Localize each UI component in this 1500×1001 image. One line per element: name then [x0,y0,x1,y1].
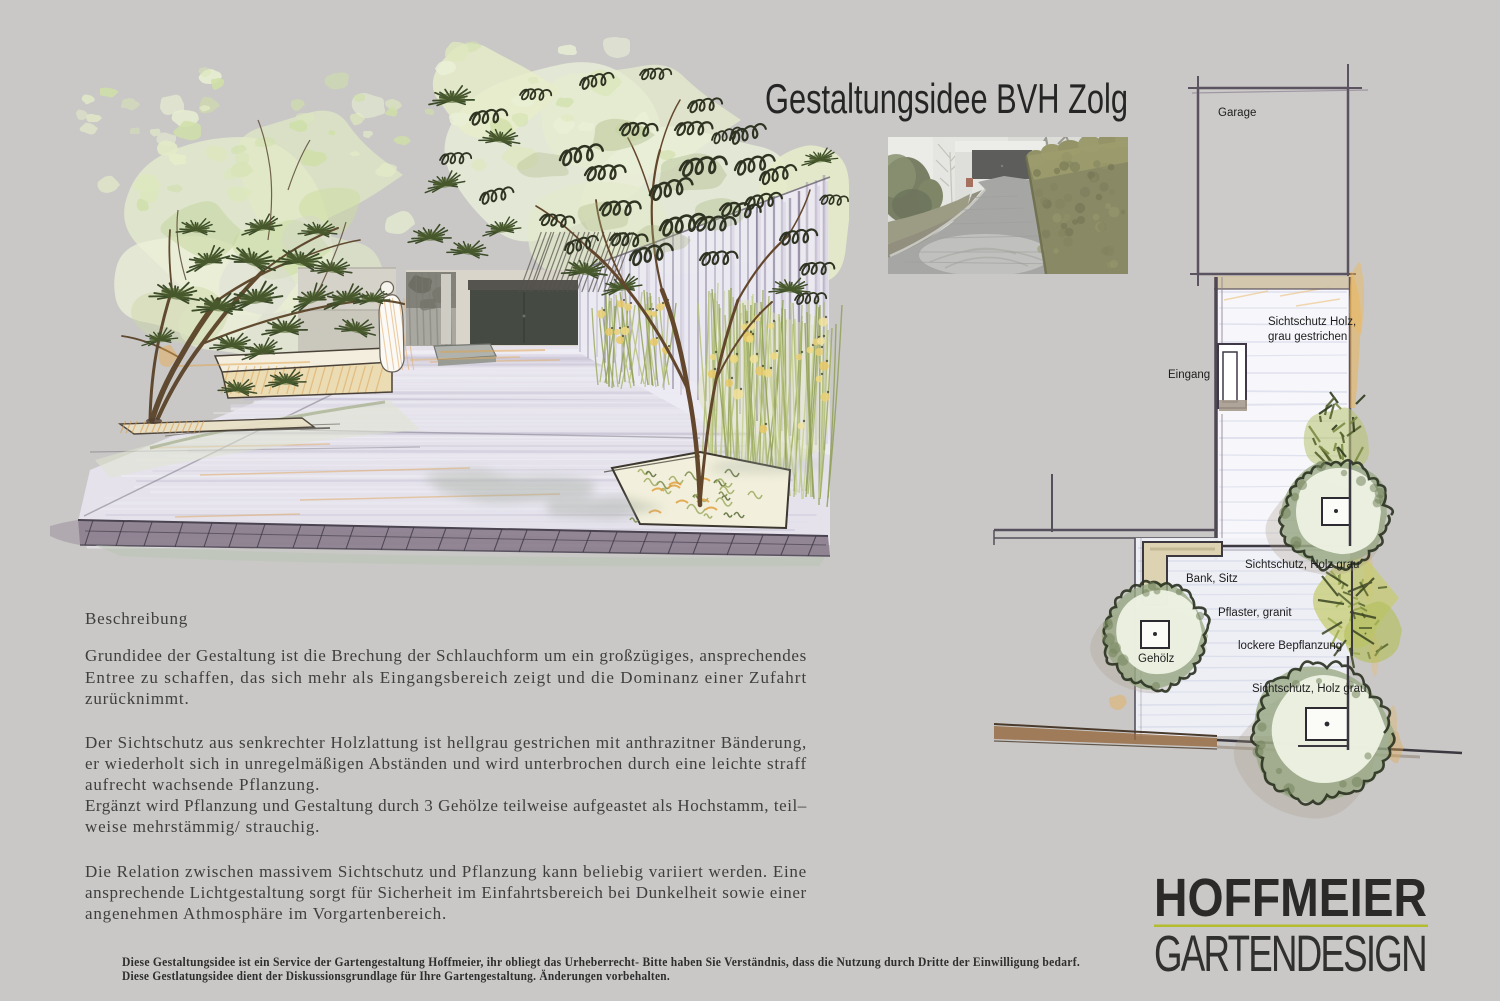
svg-text:Pflaster, granit: Pflaster, granit [1218,607,1292,619]
svg-text:Diese Gestaltungsidee ist ein: Diese Gestaltungsidee ist ein Service de… [122,955,1080,969]
svg-text:Der Sichtschutz aus senkrechte: Der Sichtschutz aus senkrechter Holzlatt… [85,733,807,752]
svg-text:angenehmen Athmosphäre im Vorg: angenehmen Athmosphäre im Vorgartenberei… [85,904,447,923]
svg-text:ansprechende Lichtgestaltung s: ansprechende Lichtgestaltung sorgt für S… [85,883,807,902]
svg-text:Sichtschutz Holz,: Sichtschutz Holz, [1268,316,1356,328]
svg-text:Ergänzt wird Pflanzung und Ges: Ergänzt wird Pflanzung und Gestaltung du… [85,796,807,815]
svg-text:er wiederholt sich in unregelm: er wiederholt sich in unregelmäßigen Abs… [85,754,807,773]
svg-text:Sichtschutz, Holz grau: Sichtschutz, Holz grau [1252,683,1366,695]
svg-text:lockere Bepflanzung: lockere Bepflanzung [1238,640,1342,652]
svg-text:Garage: Garage [1218,107,1256,119]
svg-text:Eingang: Eingang [1168,369,1210,381]
svg-text:Sichtschutz, Holz grau: Sichtschutz, Holz grau [1245,559,1359,571]
svg-text:Grundidee der Gestaltung ist d: Grundidee der Gestaltung ist die Brechun… [85,646,807,665]
svg-text:Gehölz: Gehölz [1138,653,1175,665]
svg-text:Diese Gestlatungsidee dient de: Diese Gestlatungsidee dient der Diskussi… [122,969,670,983]
svg-text:Die Relation zwischen massivem: Die Relation zwischen massivem Sichtschu… [85,862,807,881]
svg-text:Gestaltungsidee BVH Zolg: Gestaltungsidee BVH Zolg [765,75,1128,122]
svg-text:grau gestrichen: grau gestrichen [1268,331,1347,343]
svg-text:HOFFMEIER: HOFFMEIER [1154,868,1427,928]
svg-text:aufrecht wachsende Pflanzung.: aufrecht wachsende Pflanzung. [85,775,320,794]
svg-text:Entree zu schaffen, das sich m: Entree zu schaffen, das sich mehr als Ei… [85,668,807,687]
svg-text:Beschreibung: Beschreibung [85,609,188,628]
svg-text:weise mehrstämmig/ strauchig.: weise mehrstämmig/ strauchig. [85,817,320,836]
svg-text:zurücknimmt.: zurücknimmt. [85,689,190,708]
svg-text:Bank, Sitz: Bank, Sitz [1186,573,1238,585]
svg-text:GARTENDESIGN: GARTENDESIGN [1154,926,1428,982]
